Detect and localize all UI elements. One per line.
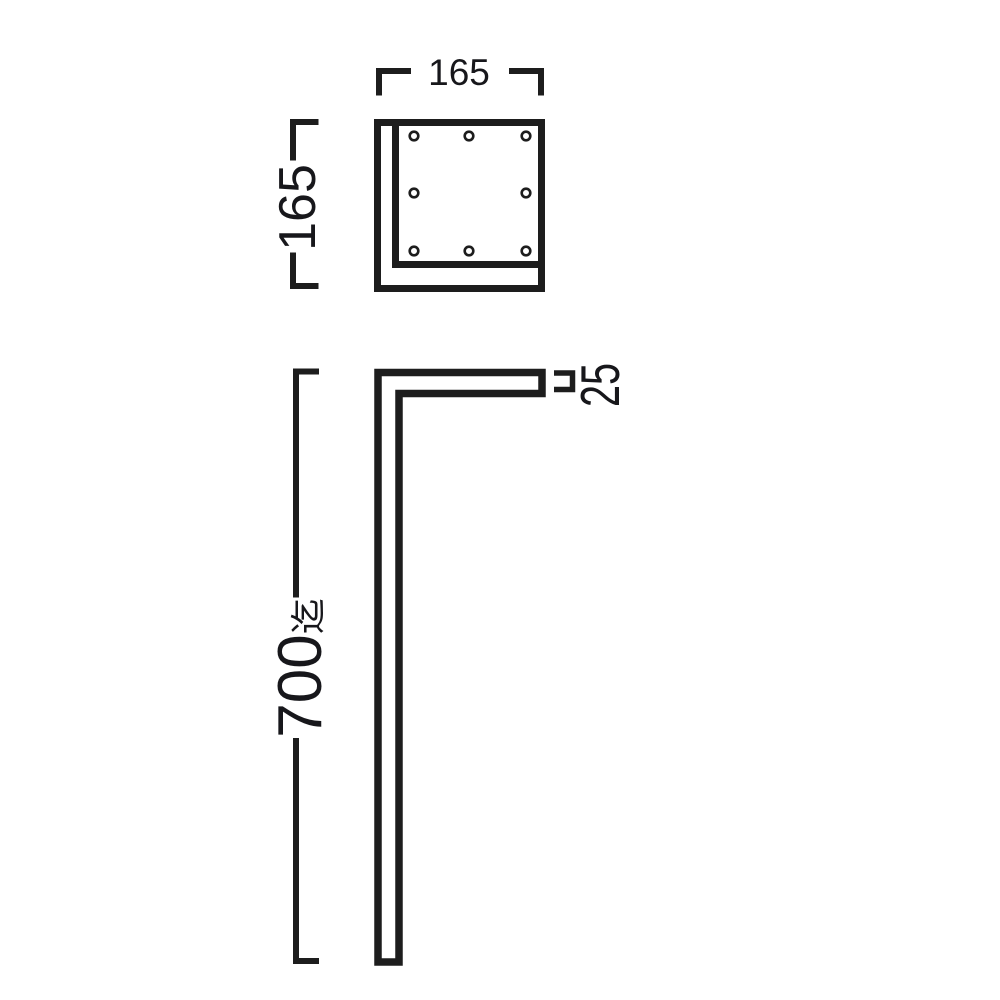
screw-hole-6: [410, 247, 419, 256]
dimension-drawing-canvas: 165 165 25 700迄: [0, 0, 1000, 1000]
arm-thickness-label: 25: [572, 363, 628, 408]
drawing-lines: [0, 0, 1000, 1000]
leg-height-suffix: 迄: [288, 598, 329, 634]
leg-profile-outline: [378, 373, 542, 963]
screw-hole-1: [410, 132, 419, 141]
screw-hole-2: [465, 132, 474, 141]
plate-width-label: 165: [427, 54, 491, 92]
screw-hole-3: [522, 132, 531, 141]
plate-depth-label: 165: [272, 163, 325, 252]
leg-height-label: 700迄: [269, 598, 333, 738]
screw-hole-8: [522, 247, 531, 256]
screw-hole-4: [410, 189, 419, 198]
screw-hole-5: [522, 189, 531, 198]
leg-height-value: 700: [266, 634, 335, 737]
screw-hole-7: [465, 247, 474, 256]
